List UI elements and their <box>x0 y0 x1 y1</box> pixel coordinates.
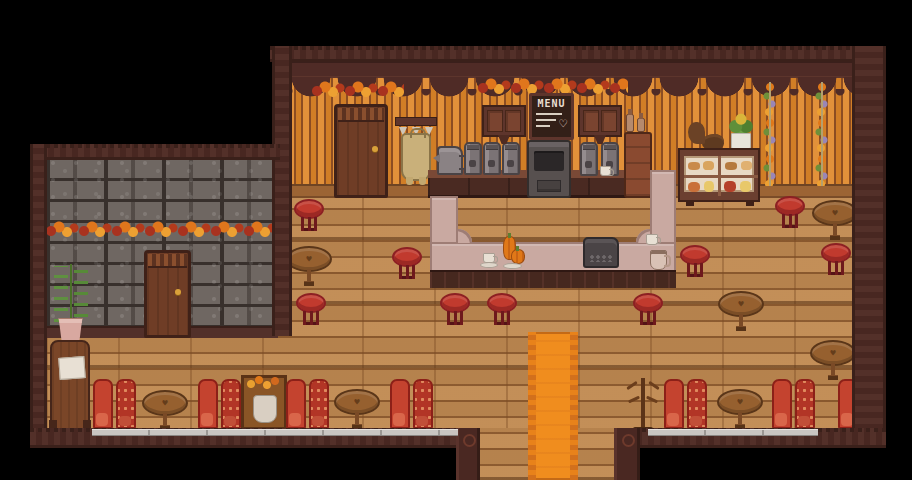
bakery-divider <box>684 175 758 178</box>
cabinet-door <box>505 110 521 132</box>
booth-seat-pair[interactable] <box>664 379 708 429</box>
apron-rack-shelf <box>395 117 437 126</box>
hanging-apron[interactable] <box>401 133 431 181</box>
heart-engraving: ♥ <box>306 255 311 264</box>
left-room-door[interactable] <box>144 250 191 338</box>
coat-rack-arm <box>648 381 660 390</box>
kick-plate-strip <box>648 429 818 436</box>
booth-seat <box>687 379 707 429</box>
bar-stool[interactable] <box>821 243 851 276</box>
pastry-bun <box>741 161 752 170</box>
frame-top <box>270 46 886 62</box>
booth-seat <box>390 379 410 429</box>
table-top: ♥ <box>810 340 856 366</box>
squirrel-statue <box>688 122 726 150</box>
menu-line <box>536 119 556 121</box>
coffee-canister <box>502 142 520 175</box>
bakery-display-case[interactable] <box>678 148 760 202</box>
bar-counter-front-top[interactable] <box>430 242 676 272</box>
autumn-garland-left <box>312 80 404 102</box>
booth-seat <box>309 379 329 429</box>
booth-seat-pair[interactable] <box>93 379 137 429</box>
flower-table[interactable] <box>241 375 287 430</box>
booth-seat <box>93 379 113 429</box>
table-top: ♥ <box>718 291 764 317</box>
booth-seat <box>221 379 241 429</box>
coffee-canister <box>483 142 501 175</box>
coat-rack-arm <box>646 396 658 404</box>
booth-table[interactable]: ♥ <box>334 389 380 429</box>
cornice-trim <box>288 60 854 78</box>
bar-stool[interactable] <box>392 247 422 280</box>
entry-rug <box>528 332 578 480</box>
booth-seat <box>772 379 792 429</box>
coat-rack[interactable] <box>626 378 660 430</box>
pastry-bread <box>725 162 737 170</box>
coffee-pot[interactable] <box>437 146 463 175</box>
doorway-post-left <box>456 428 480 480</box>
back-room-door[interactable] <box>334 104 388 198</box>
booth-seat <box>286 379 306 429</box>
heart-engraving: ♥ <box>738 300 743 309</box>
booth-seat <box>795 379 815 429</box>
bar-stool[interactable] <box>680 245 710 278</box>
menu-chalkboard[interactable]: MENU ♡ <box>529 93 574 140</box>
booth-seat <box>198 379 218 429</box>
frame-top-left-wing <box>30 144 280 160</box>
menu-title: MENU <box>536 99 567 109</box>
bar-stool[interactable] <box>440 293 470 326</box>
autumn-garland-stone-wall <box>46 220 290 242</box>
coat-rack-arm <box>628 396 640 404</box>
frame-left <box>30 144 47 448</box>
pastry-toast <box>740 181 751 192</box>
syrup-bottle <box>626 114 634 132</box>
booth-seat-pair[interactable] <box>198 379 242 429</box>
bar-counter-left-arm[interactable] <box>430 196 458 246</box>
bar-stool[interactable] <box>294 199 324 232</box>
milk-pitcher <box>650 250 667 270</box>
cafe-table[interactable]: ♥ <box>810 340 856 380</box>
counter-cup <box>600 166 611 176</box>
plate <box>503 263 522 269</box>
heart-engraving: ♥ <box>830 349 835 358</box>
booth-table[interactable]: ♥ <box>142 390 188 430</box>
table-top: ♥ <box>717 389 763 415</box>
menu-line <box>536 113 562 115</box>
sign-paper <box>58 356 85 380</box>
cabinet-door <box>487 110 503 132</box>
heart-engraving: ♥ <box>354 398 359 407</box>
wall-cabinet-left[interactable] <box>482 105 526 137</box>
cabinet-door <box>583 110 599 132</box>
table-top: ♥ <box>286 246 332 272</box>
coffee-cup[interactable] <box>483 253 495 263</box>
bar-stool[interactable] <box>775 196 805 229</box>
cabinet-door <box>601 110 617 132</box>
heart-engraving: ♥ <box>162 399 167 408</box>
cash-register[interactable] <box>583 237 619 268</box>
booth-seat <box>413 379 433 429</box>
coffee-canister <box>580 142 598 176</box>
heart-icon: ♡ <box>559 117 567 130</box>
frame-right <box>852 46 886 448</box>
booth-seat <box>116 379 136 429</box>
pumpkin <box>511 249 525 264</box>
coffee-cup[interactable] <box>646 234 658 245</box>
table-top: ♥ <box>142 390 188 416</box>
flower-vase <box>253 395 277 423</box>
heart-engraving: ♥ <box>832 209 837 218</box>
menu-line <box>536 125 550 127</box>
standing-sign[interactable] <box>50 340 90 430</box>
teapot <box>724 181 736 192</box>
wall-cabinet-right[interactable] <box>578 105 622 137</box>
hanging-dried-garland-1 <box>762 82 778 186</box>
kick-plate-strip <box>92 429 458 436</box>
table-top: ♥ <box>334 389 380 415</box>
tall-cabinet[interactable] <box>624 132 652 198</box>
espresso-machine[interactable] <box>527 140 571 198</box>
cafe-room: MENU ♡ <box>0 0 912 480</box>
bar-stool[interactable] <box>296 293 326 326</box>
doorway-post-right <box>614 428 640 480</box>
booth-seat-pair[interactable] <box>390 379 434 429</box>
bar-stool[interactable] <box>633 293 663 326</box>
pastry-toast <box>704 181 714 192</box>
flower-bouquet <box>246 376 282 392</box>
coffee-canister <box>464 142 482 175</box>
bar-counter-front-panel <box>430 270 676 288</box>
booth-table[interactable]: ♥ <box>717 389 763 429</box>
pastry-pie <box>688 182 700 192</box>
pastry-bread <box>688 162 700 170</box>
syrup-bottle <box>637 118 645 132</box>
bar-stool[interactable] <box>487 293 517 326</box>
heart-engraving: ♥ <box>737 398 742 407</box>
booth-seat-pair[interactable] <box>286 379 330 429</box>
hanging-dried-garland-2 <box>814 82 830 186</box>
frame-divider-post <box>272 46 292 336</box>
pastry-croissant <box>703 161 714 170</box>
cafe-table[interactable]: ♥ <box>286 246 332 286</box>
fern-plant <box>53 264 89 322</box>
booth-seat-pair[interactable] <box>772 379 816 429</box>
cafe-table[interactable]: ♥ <box>718 291 764 331</box>
booth-seat <box>664 379 684 429</box>
coat-rack-arm <box>626 381 638 390</box>
